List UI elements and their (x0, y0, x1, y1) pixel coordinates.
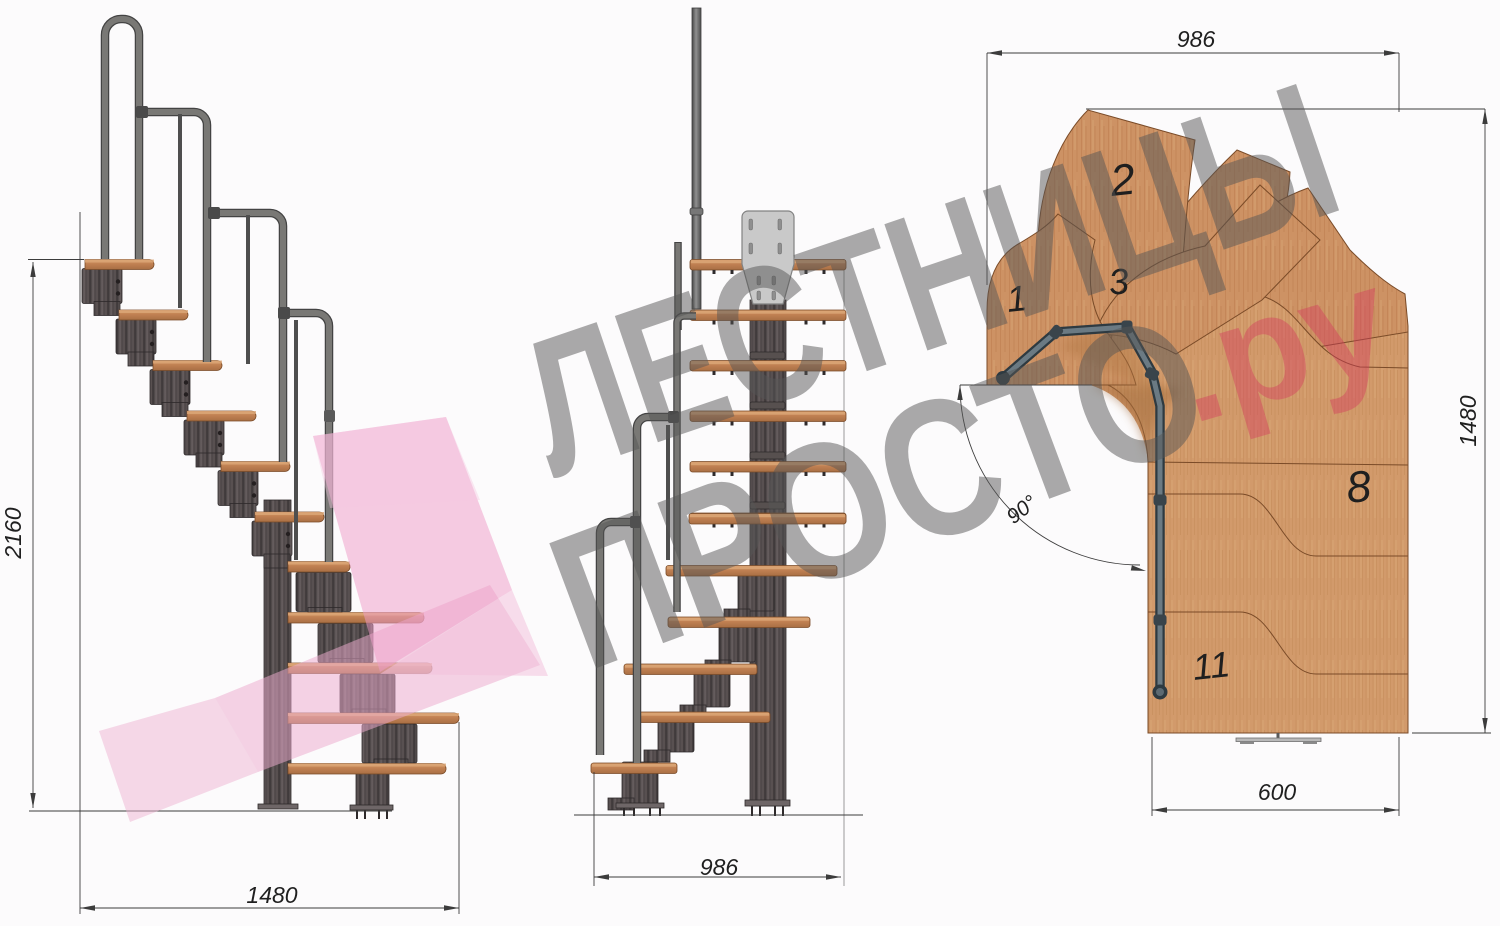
svg-text:11: 11 (1191, 643, 1232, 688)
svg-text:986: 986 (700, 854, 739, 880)
svg-text:1480: 1480 (1455, 395, 1481, 446)
svg-text:986: 986 (1177, 26, 1216, 52)
svg-text:600: 600 (1258, 779, 1297, 805)
svg-text:2160: 2160 (0, 507, 26, 559)
svg-text:1480: 1480 (246, 882, 297, 908)
